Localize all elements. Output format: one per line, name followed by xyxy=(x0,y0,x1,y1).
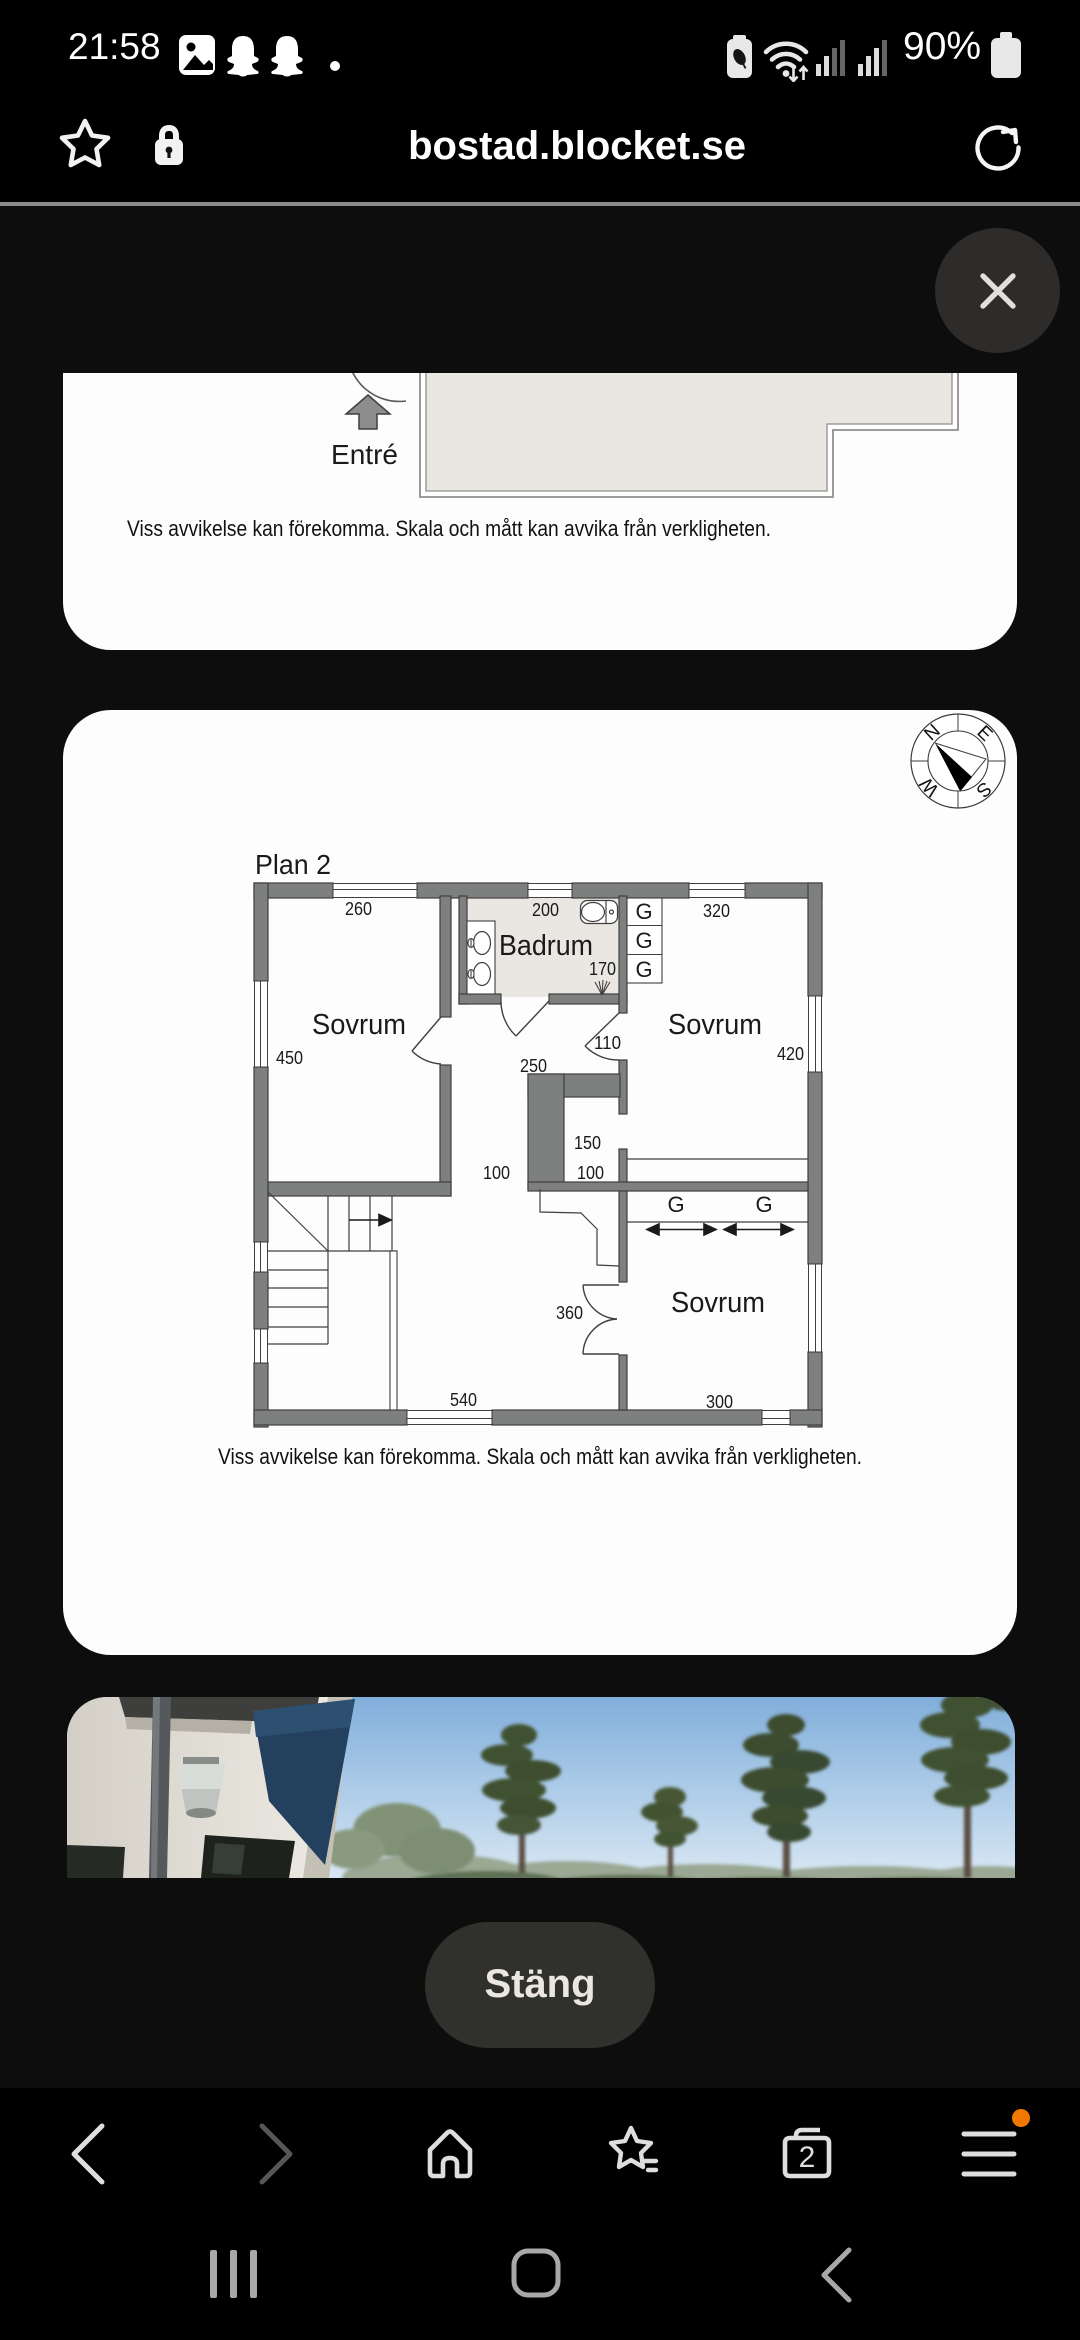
svg-text:Sovrum: Sovrum xyxy=(668,1009,762,1041)
svg-text:540: 540 xyxy=(450,1389,477,1410)
svg-text:Sovrum: Sovrum xyxy=(671,1287,765,1319)
svg-text:110: 110 xyxy=(594,1032,621,1053)
svg-text:G: G xyxy=(635,928,652,953)
svg-text:Sovrum: Sovrum xyxy=(312,1009,406,1041)
svg-text:100: 100 xyxy=(483,1162,510,1183)
svg-text:150: 150 xyxy=(574,1132,601,1153)
svg-text:G: G xyxy=(667,1192,684,1217)
svg-text:Entré: Entré xyxy=(331,439,398,470)
svg-text:G: G xyxy=(635,899,652,924)
svg-text:Viss avvikelse kan förekomma.: Viss avvikelse kan förekomma. Skala och … xyxy=(218,1444,862,1469)
svg-text:260: 260 xyxy=(345,898,372,919)
svg-text:G: G xyxy=(635,957,652,982)
svg-text:450: 450 xyxy=(276,1047,303,1068)
svg-text:420: 420 xyxy=(777,1043,804,1064)
svg-text:360: 360 xyxy=(556,1302,583,1323)
svg-text:250: 250 xyxy=(520,1055,547,1076)
svg-text:Plan 2: Plan 2 xyxy=(255,849,331,880)
svg-text:2: 2 xyxy=(799,2141,816,2174)
svg-text:320: 320 xyxy=(703,900,730,921)
svg-text:Badrum: Badrum xyxy=(499,930,593,962)
svg-text:200: 200 xyxy=(532,899,559,920)
svg-text:Viss avvikelse kan förekomma.: Viss avvikelse kan förekomma. Skala och … xyxy=(127,516,771,541)
svg-text:100: 100 xyxy=(577,1162,604,1183)
svg-text:300: 300 xyxy=(706,1391,733,1412)
svg-text:G: G xyxy=(755,1192,772,1217)
svg-text:170: 170 xyxy=(589,958,616,979)
